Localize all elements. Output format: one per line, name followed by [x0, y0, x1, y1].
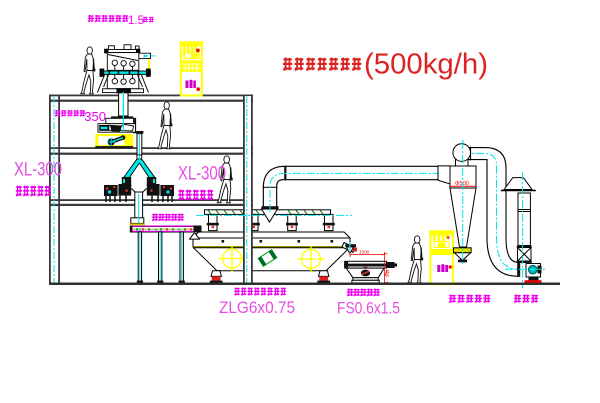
- svg-text:350: 350: [84, 109, 106, 124]
- svg-text:FS0.6x1.5: FS0.6x1.5: [337, 300, 400, 318]
- svg-text:Φ500: Φ500: [455, 181, 469, 187]
- svg-text:XL-300: XL-300: [178, 164, 226, 185]
- svg-text:345: 345: [385, 269, 390, 277]
- svg-text:(500kg/h): (500kg/h): [364, 49, 488, 81]
- svg-text:ZLG6x0.75: ZLG6x0.75: [219, 299, 295, 317]
- svg-text:XL-300: XL-300: [14, 160, 62, 181]
- svg-text:1500: 1500: [359, 249, 370, 254]
- svg-text:1.5: 1.5: [128, 15, 144, 27]
